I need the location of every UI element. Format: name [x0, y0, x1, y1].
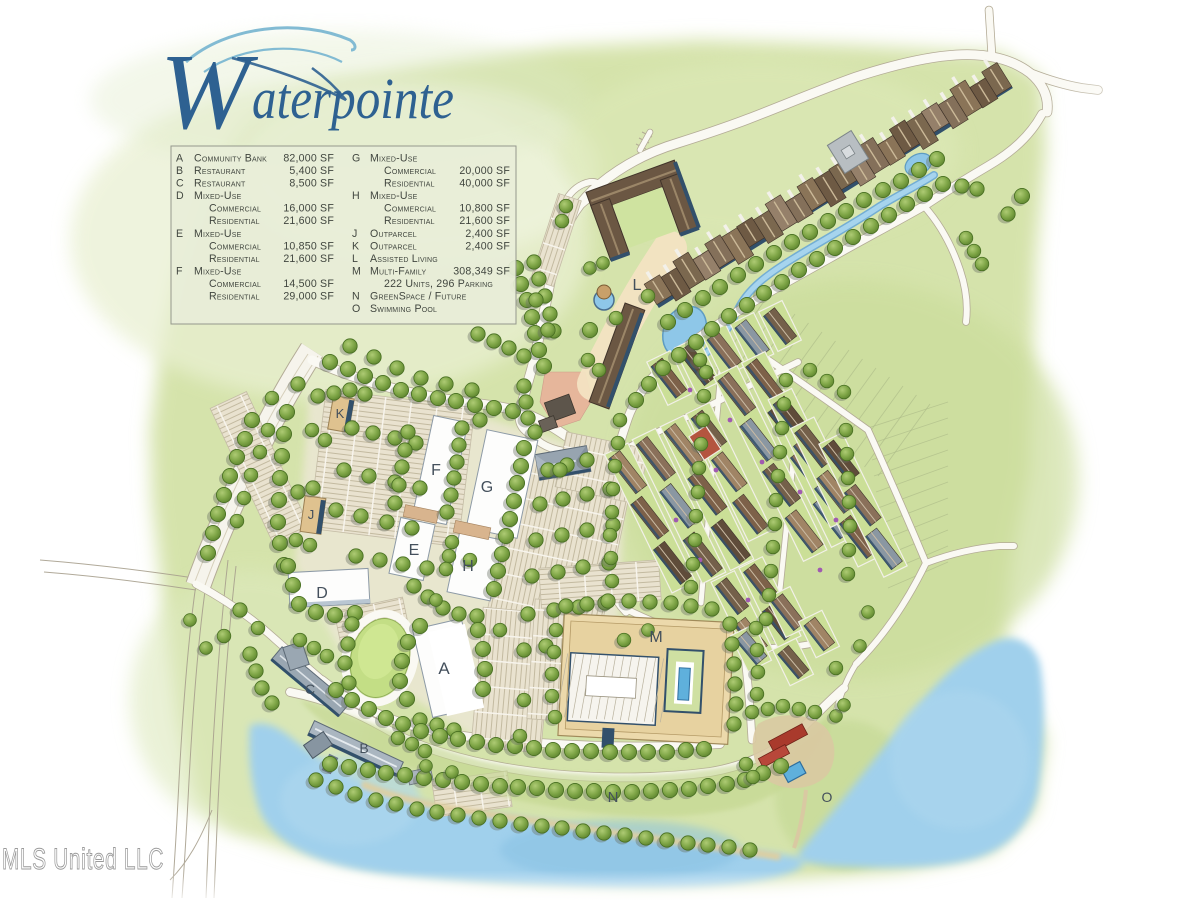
svg-text:L: L — [352, 253, 358, 265]
svg-text:Commercial: Commercial — [384, 165, 436, 177]
svg-text:29,000 SF: 29,000 SF — [283, 291, 334, 303]
svg-text:Outparcel: Outparcel — [370, 240, 417, 252]
svg-text:F: F — [176, 265, 183, 277]
svg-text:Assisted Living: Assisted Living — [370, 253, 438, 265]
svg-text:J: J — [308, 507, 315, 522]
svg-text:16,000 SF: 16,000 SF — [283, 203, 334, 215]
svg-text:E: E — [409, 542, 420, 559]
svg-text:W: W — [160, 33, 259, 152]
svg-text:B: B — [176, 165, 183, 177]
svg-text:21,600 SF: 21,600 SF — [459, 215, 510, 227]
svg-text:5,400 SF: 5,400 SF — [289, 165, 334, 177]
svg-text:F: F — [431, 462, 441, 479]
svg-text:H: H — [352, 190, 360, 202]
svg-text:Commercial: Commercial — [209, 203, 261, 215]
svg-text:Multi-Family: Multi-Family — [370, 265, 426, 277]
svg-text:Mixed-Use: Mixed-Use — [194, 228, 242, 240]
svg-text:Commercial: Commercial — [384, 203, 436, 215]
svg-text:10,850 SF: 10,850 SF — [283, 240, 334, 252]
svg-text:N: N — [608, 789, 619, 806]
svg-text:D: D — [316, 585, 328, 602]
svg-text:Residential: Residential — [209, 291, 260, 303]
svg-text:10,800 SF: 10,800 SF — [459, 203, 510, 215]
svg-text:21,600 SF: 21,600 SF — [283, 215, 334, 227]
svg-text:Restaurant: Restaurant — [194, 165, 246, 177]
svg-text:C: C — [305, 681, 315, 697]
svg-text:308,349 SF: 308,349 SF — [453, 265, 510, 277]
svg-text:Residential: Residential — [209, 215, 260, 227]
svg-text:20,000 SF: 20,000 SF — [459, 165, 510, 177]
svg-text:82,000 SF: 82,000 SF — [283, 153, 334, 165]
svg-text:M: M — [352, 265, 361, 277]
svg-text:Residential: Residential — [209, 253, 260, 265]
svg-text:8,500 SF: 8,500 SF — [289, 178, 334, 190]
svg-text:Mixed-Use: Mixed-Use — [194, 265, 242, 277]
svg-text:Commercial: Commercial — [209, 240, 261, 252]
svg-text:aterpointe: aterpointe — [252, 66, 454, 131]
svg-text:M: M — [649, 629, 662, 646]
svg-text:H: H — [462, 558, 474, 575]
svg-text:O: O — [352, 303, 360, 315]
svg-text:E: E — [176, 228, 183, 240]
svg-text:Mixed-Use: Mixed-Use — [370, 153, 418, 165]
svg-text:C: C — [176, 178, 184, 190]
svg-text:GreenSpace / Future: GreenSpace / Future — [370, 291, 467, 303]
svg-text:Swimming Pool: Swimming Pool — [370, 303, 437, 315]
svg-text:K: K — [336, 406, 345, 421]
svg-text:2,400 SF: 2,400 SF — [465, 240, 510, 252]
svg-text:A: A — [438, 659, 450, 678]
svg-text:D: D — [176, 190, 184, 202]
svg-text:Mixed-Use: Mixed-Use — [370, 190, 418, 202]
svg-text:222 Units, 296 Parking: 222 Units, 296 Parking — [384, 278, 493, 290]
svg-text:14,500 SF: 14,500 SF — [283, 278, 334, 290]
svg-text:40,000 SF: 40,000 SF — [459, 178, 510, 190]
svg-text:Residential: Residential — [384, 215, 435, 227]
svg-text:O: O — [822, 789, 833, 805]
svg-text:Residential: Residential — [384, 178, 435, 190]
svg-text:A: A — [176, 153, 184, 165]
svg-text:Community Bank: Community Bank — [194, 153, 267, 165]
svg-text:L: L — [633, 277, 642, 294]
svg-text:Outparcel: Outparcel — [370, 228, 417, 240]
svg-text:G: G — [352, 153, 360, 165]
svg-text:21,600 SF: 21,600 SF — [283, 253, 334, 265]
svg-text:B: B — [359, 740, 368, 756]
svg-text:Mixed-Use: Mixed-Use — [194, 190, 242, 202]
svg-text:G: G — [481, 479, 493, 496]
svg-text:K: K — [352, 240, 359, 252]
svg-text:2,400 SF: 2,400 SF — [465, 228, 510, 240]
svg-text:Commercial: Commercial — [209, 278, 261, 290]
svg-text:J: J — [352, 228, 358, 240]
svg-text:Restaurant: Restaurant — [194, 178, 246, 190]
svg-text:N: N — [352, 291, 360, 303]
